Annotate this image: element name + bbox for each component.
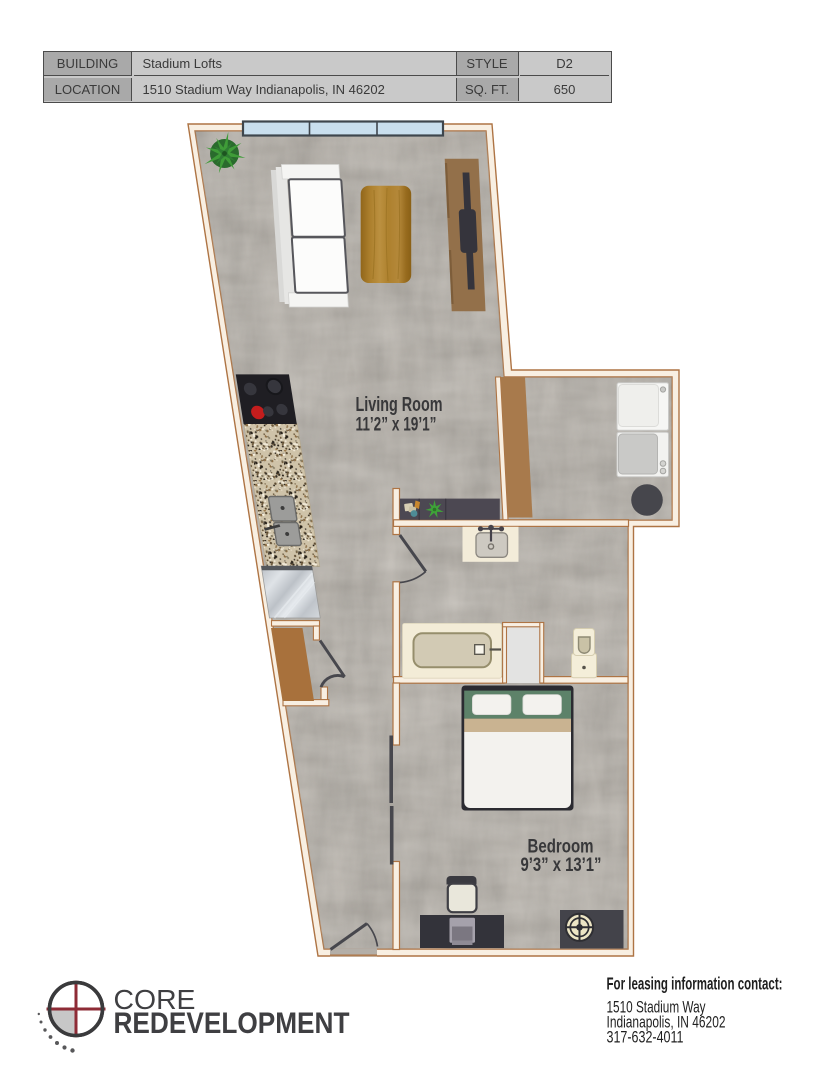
svg-text:Living Room: Living Room	[356, 394, 443, 416]
svg-text:REDEVELOPMENT: REDEVELOPMENT	[114, 1007, 350, 1040]
svg-text:317-632-4011: 317-632-4011	[607, 1028, 684, 1047]
svg-text:For leasing information contac: For leasing information contact:	[607, 974, 783, 994]
svg-text:11’2” x 19’1”: 11’2” x 19’1”	[356, 415, 437, 436]
svg-text:9’3” x 13’1”: 9’3” x 13’1”	[521, 855, 602, 876]
